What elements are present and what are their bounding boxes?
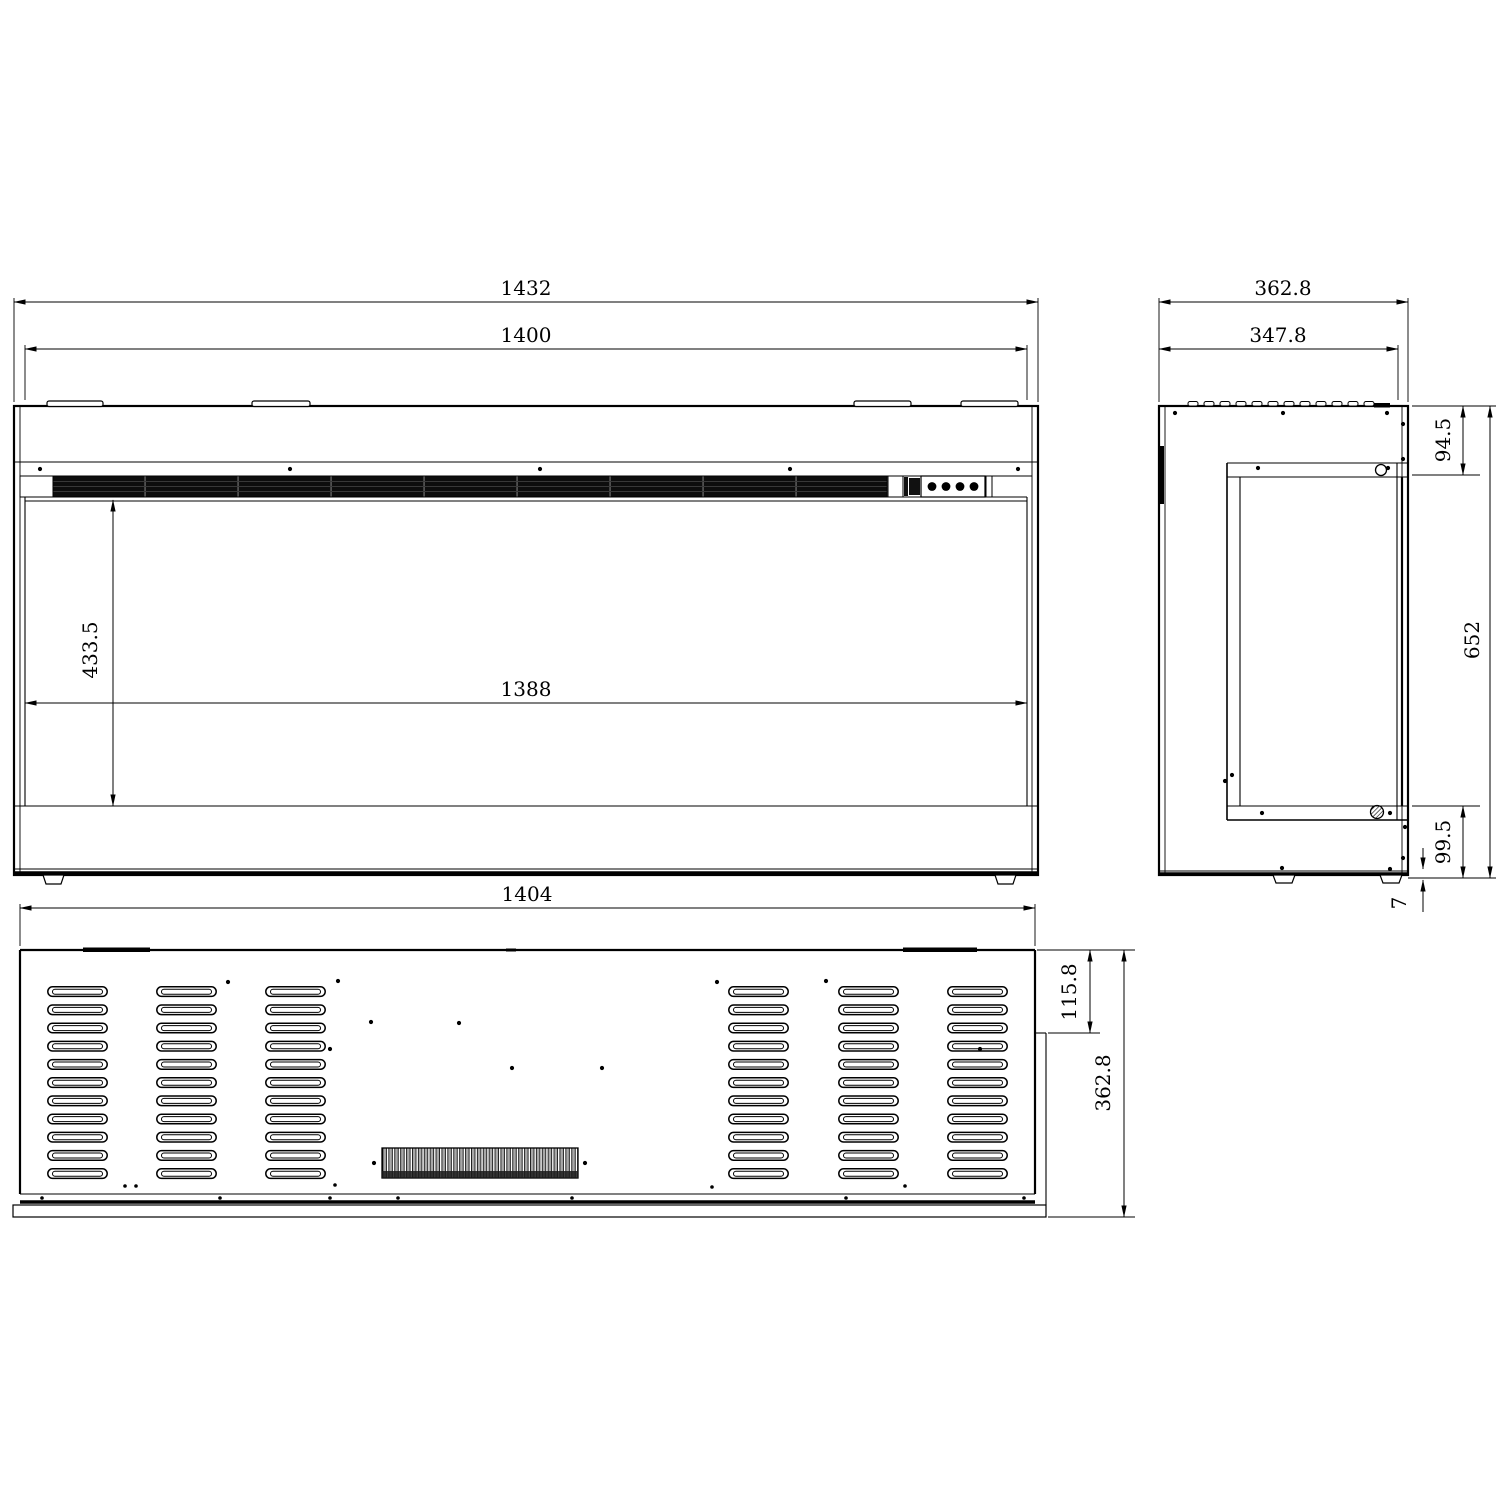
top-vent-strip	[20, 476, 887, 497]
hatched-fastener	[1371, 806, 1384, 819]
dim-front-opening-height: 433.5	[78, 500, 113, 806]
dim-label: 362.8	[1091, 1054, 1115, 1111]
front-view: 1432 1400 433.5 1388	[14, 276, 1038, 884]
dim-label: 99.5	[1431, 820, 1455, 865]
side-inner-box	[1227, 463, 1408, 820]
foot-right	[1380, 875, 1402, 883]
dim-side-top-section-height: 94.5	[1412, 406, 1496, 475]
glass-opening	[14, 497, 1038, 806]
dim-label: 94.5	[1431, 418, 1455, 463]
pilot-hole	[1376, 465, 1387, 476]
dim-label: 1432	[501, 276, 552, 300]
dim-side-top-depth: 347.8	[1159, 323, 1398, 400]
dim-label: 652	[1460, 621, 1484, 659]
base-screw-dots	[40, 1196, 1026, 1200]
side-outline	[1159, 403, 1408, 875]
side-view: 362.8 347.8 94.5 652 99.5 7	[1159, 276, 1496, 912]
dim-label: 1388	[501, 677, 552, 701]
top-edge-mark-left	[83, 948, 150, 953]
dim-side-base-section-height: 99.5	[1412, 806, 1480, 878]
dim-front-inner-width: 1400	[25, 323, 1027, 400]
top-edge-mark	[1374, 403, 1390, 408]
heater-grille	[382, 1148, 578, 1178]
dim-rear-vent-panel-offset: 115.8	[1037, 950, 1135, 1033]
dim-front-opening-width: 1388	[25, 677, 1027, 703]
top-edge-mark-right	[903, 948, 977, 953]
dim-label: 1400	[501, 323, 552, 347]
dim-label: 433.5	[78, 621, 102, 678]
dim-label: 115.8	[1057, 963, 1081, 1020]
drawing-canvas: 1432 1400 433.5 1388	[0, 0, 1500, 1500]
rear-view: 1404 115.8 362.8	[13, 882, 1135, 1217]
foot-right	[995, 875, 1016, 884]
top-edge-tick	[506, 949, 516, 952]
foot-left	[43, 875, 64, 884]
control-panel	[888, 476, 992, 497]
front-glass-edge	[1159, 446, 1164, 504]
technical-drawing-sheet: 1432 1400 433.5 1388	[0, 0, 1500, 1500]
dim-label: 1404	[502, 882, 553, 906]
dim-side-overall-height: 652	[1412, 406, 1496, 878]
side-base	[1159, 871, 1408, 883]
side-screw-dots	[1173, 411, 1407, 871]
dim-label: 362.8	[1254, 276, 1311, 300]
dim-rear-width: 1404	[20, 882, 1035, 946]
dim-label: 347.8	[1249, 323, 1306, 347]
front-screw-dots	[38, 467, 1020, 471]
rear-base	[13, 1196, 1046, 1217]
foot-left	[1273, 875, 1295, 883]
dim-label: 7	[1387, 897, 1411, 910]
